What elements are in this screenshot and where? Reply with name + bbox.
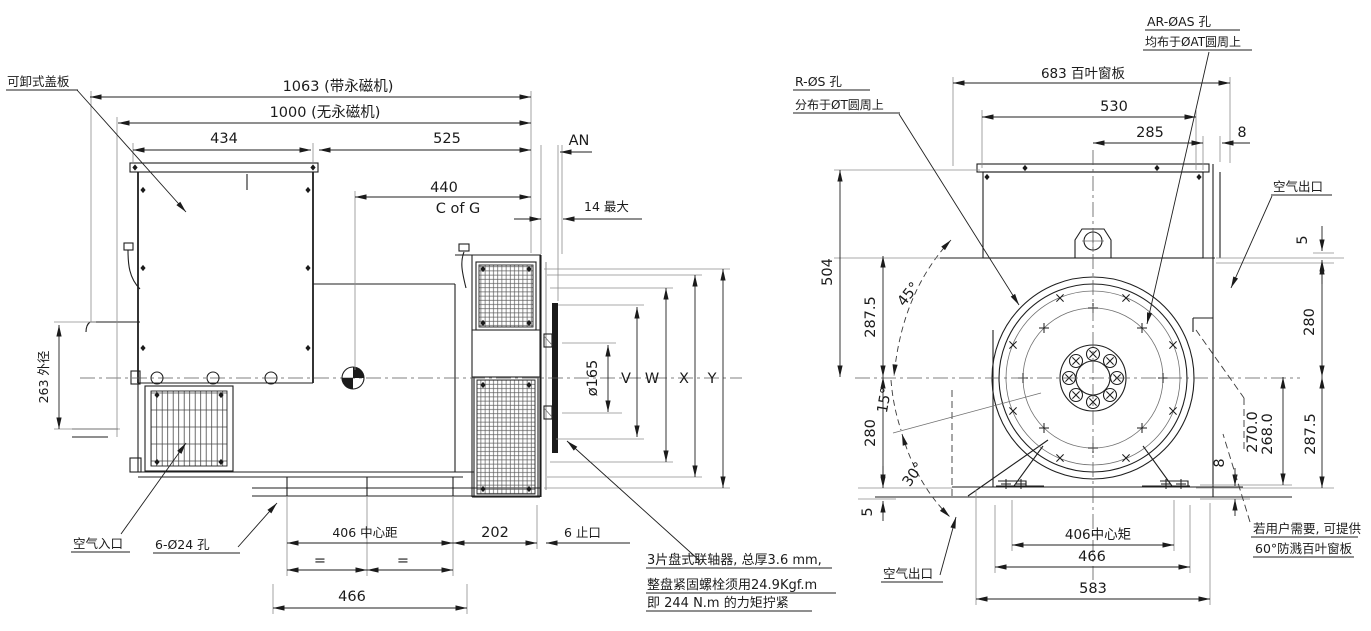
left-side-fittings (72, 243, 141, 472)
dim-an: AN (569, 133, 590, 149)
centerlines-right (855, 150, 1300, 580)
dim-440: 440 (430, 180, 458, 196)
label-removable-cover: 可卸式盖板 (7, 74, 70, 89)
dim-8-top: 8 (1237, 125, 1246, 141)
dim-v: V (621, 371, 631, 387)
label-ar-holes: AR-ØAS 孔 (1147, 14, 1212, 29)
label-air-inlet: 空气入口 (73, 536, 123, 551)
generator-dimension-drawing: 1063 (带永磁机) 1000 (无永磁机) 434 525 440 C of… (0, 0, 1371, 631)
louver-note-line1: 若用户需要, 可提供 (1253, 521, 1361, 536)
coupling-note-line2: 整盘紧固螺栓须用24.9Kgf.m (647, 577, 817, 593)
dim-434: 434 (210, 131, 238, 147)
label-air-outlet-bottom: 空气出口 (883, 566, 933, 581)
coupling-note-line1: 3片盘式联轴器, 总厚3.6 mm, (647, 552, 822, 568)
dim-x: X (679, 371, 689, 387)
dim-530: 530 (1100, 99, 1128, 115)
dim-eq-right: = (397, 553, 409, 569)
centerline-left (80, 372, 742, 384)
left-callouts: 可卸式盖板 空气入口 6-Ø24 孔 3片盘式联轴器, 总厚3.6 mm, 整盘… (6, 74, 836, 611)
dim-280-right: 280 (1302, 308, 1318, 336)
dim-w: W (645, 371, 659, 387)
right-view (855, 150, 1300, 580)
frame-outline (875, 258, 1292, 497)
coupling-note-line3: 即 244 N.m 的力矩拧紧 (647, 595, 789, 611)
dim-466-left: 466 (338, 589, 366, 605)
dim-504: 504 (820, 258, 836, 286)
dim-45deg: 45° (895, 279, 923, 309)
dim-406-center: 406 中心距 (332, 525, 397, 540)
dim-268: 268.0 (1260, 413, 1276, 455)
dim-eq-left: = (314, 553, 326, 569)
pmg-cover-box (130, 163, 318, 383)
dim-15deg: 15° (875, 386, 895, 414)
dim-5-left: 5 (860, 507, 876, 516)
dim-6-spigot: 6 止口 (564, 525, 601, 540)
dim-c-of-g: C of G (436, 201, 481, 217)
dim-285: 285 (1136, 125, 1164, 141)
right-dimensions: 683 百叶窗板 530 285 8 5 280 287.5 270.0 268… (820, 65, 1322, 599)
dim-683-louver: 683 百叶窗板 (1041, 65, 1126, 82)
dim-5-top: 5 (1295, 235, 1311, 244)
dim-202: 202 (481, 525, 509, 541)
dim-14-max: 14 最大 (584, 199, 629, 214)
louver-note-line2: 60°防溅百叶窗板 (1255, 541, 1353, 556)
label-r-holes: R-ØS 孔 (795, 74, 842, 89)
dim-263-od: 263 外径 (36, 351, 51, 404)
center-of-gravity-symbol (342, 367, 364, 389)
dim-30deg: 30° (900, 460, 928, 490)
dim-287-5-left: 287.5 (863, 296, 879, 338)
dim-phi165: ø165 (585, 360, 601, 397)
dim-406-center-right: 406中心矩 (1065, 527, 1131, 543)
dim-466-right: 466 (1078, 549, 1106, 565)
dim-525: 525 (433, 131, 461, 147)
label-r-holes-sub: 分布于ØT圆周上 (795, 98, 884, 112)
coupling-disc (541, 255, 558, 497)
dim-270: 270.0 (1245, 411, 1261, 453)
dim-280-left: 280 (863, 419, 879, 447)
left-dimensions: 1063 (带永磁机) 1000 (无永磁机) 434 525 440 C of… (36, 78, 723, 608)
label-air-outlet-top: 空气出口 (1273, 179, 1323, 194)
dim-287-5-right: 287.5 (1303, 413, 1319, 455)
drive-end-frame (455, 244, 541, 497)
dim-overall-no-pmg: 1000 (无永磁机) (270, 104, 381, 121)
label-6-24-holes: 6-Ø24 孔 (155, 537, 210, 552)
left-view (72, 163, 742, 497)
air-inlet-grille (145, 386, 233, 471)
drawing-canvas: 1063 (带永磁机) 1000 (无永磁机) 434 525 440 C of… (0, 0, 1371, 631)
dim-583: 583 (1079, 581, 1107, 597)
dim-8-bottom: 8 (1212, 458, 1228, 467)
dim-overall-pmg: 1063 (带永磁机) (283, 78, 394, 95)
louver-panel (977, 164, 1220, 258)
label-ar-holes-sub: 均布于ØAT圆周上 (1145, 35, 1241, 49)
dim-y: Y (707, 371, 717, 387)
